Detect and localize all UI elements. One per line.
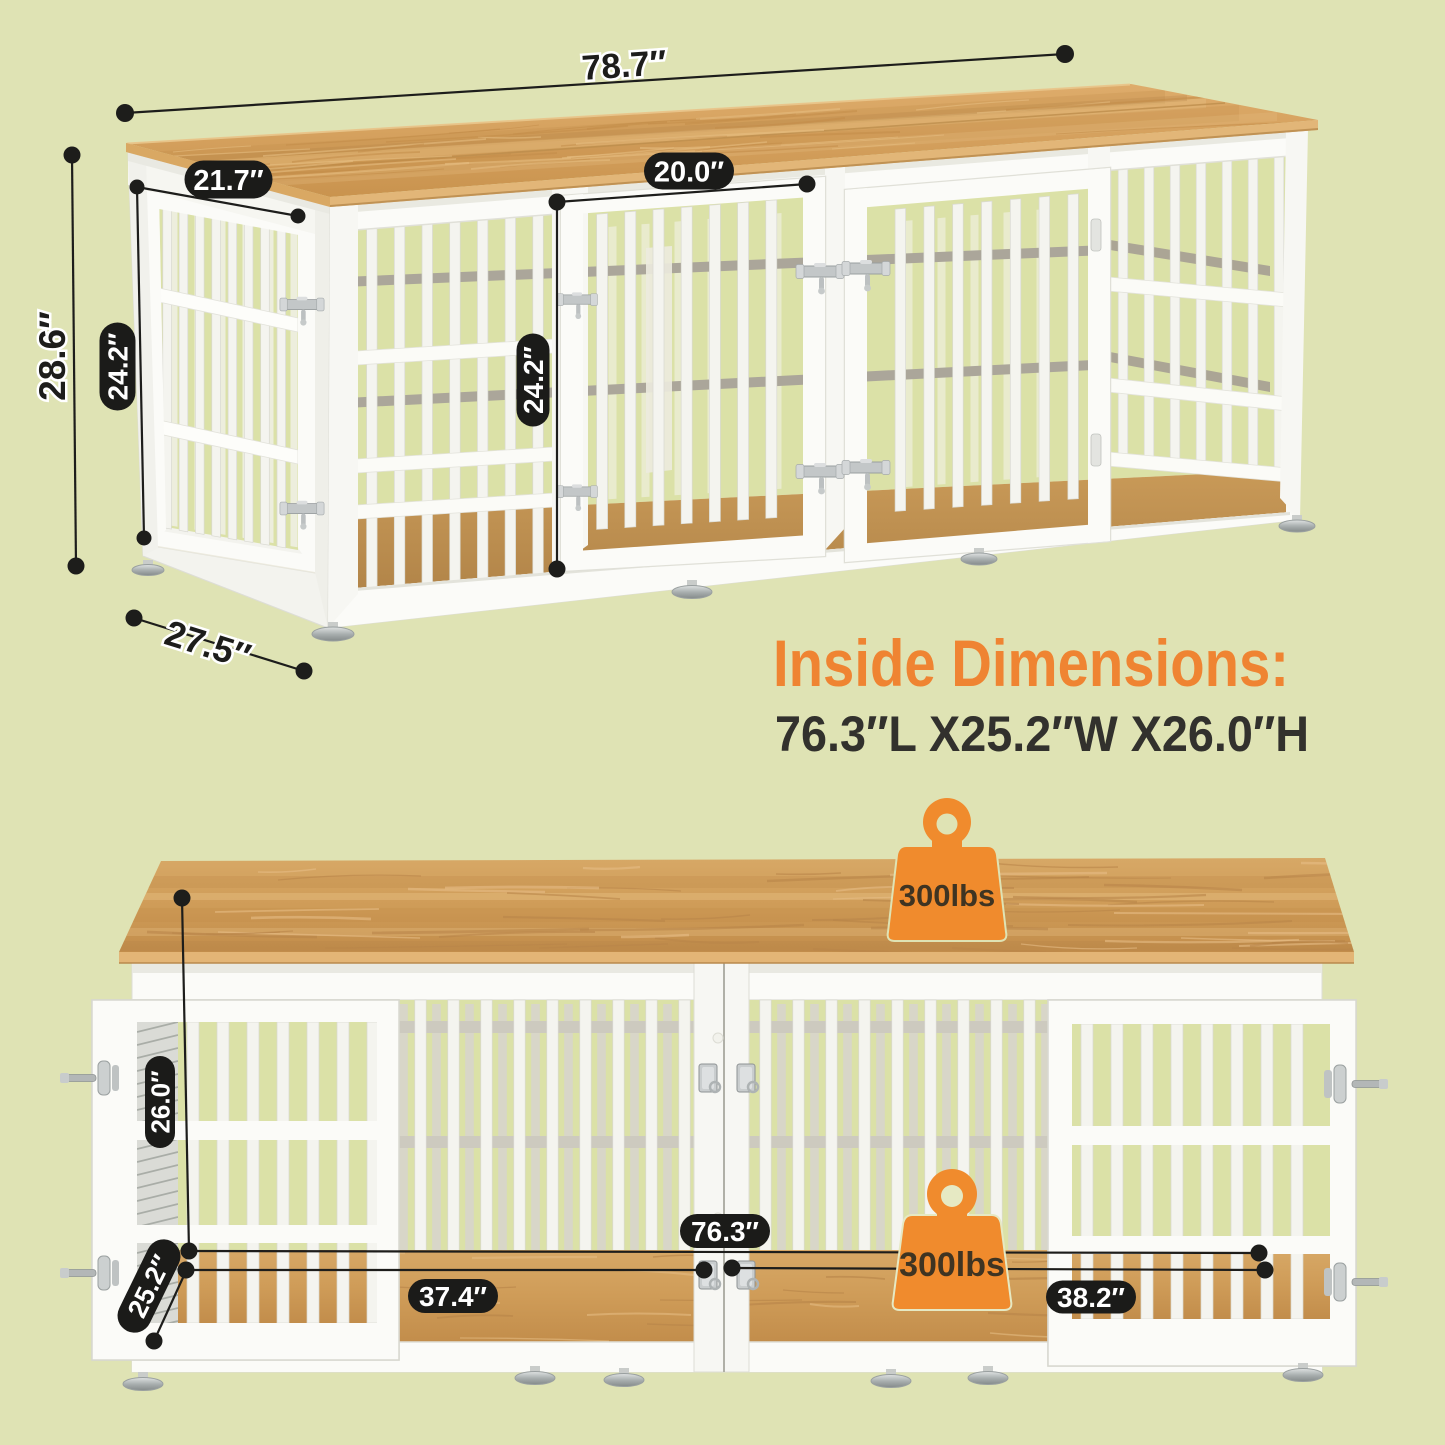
svg-text:26.0″: 26.0″: [145, 1070, 175, 1133]
svg-text:38.2″: 38.2″: [1057, 1282, 1125, 1313]
svg-text:20.0″: 20.0″: [654, 156, 724, 188]
svg-text:37.4″: 37.4″: [419, 1281, 487, 1312]
svg-text:78.7″: 78.7″: [580, 43, 668, 88]
svg-text:76.3″L X25.2″W X26.0″H: 76.3″L X25.2″W X26.0″H: [775, 706, 1309, 762]
svg-text:28.6″: 28.6″: [32, 311, 73, 401]
svg-text:21.7″: 21.7″: [193, 165, 263, 197]
svg-text:24.2″: 24.2″: [103, 333, 134, 401]
svg-text:300lbs: 300lbs: [899, 878, 996, 913]
svg-text:24.2″: 24.2″: [518, 346, 549, 414]
svg-text:300lbs: 300lbs: [899, 1246, 1005, 1284]
svg-text:76.3″: 76.3″: [691, 1216, 759, 1247]
svg-text:Inside Dimensions:: Inside Dimensions:: [773, 626, 1289, 700]
